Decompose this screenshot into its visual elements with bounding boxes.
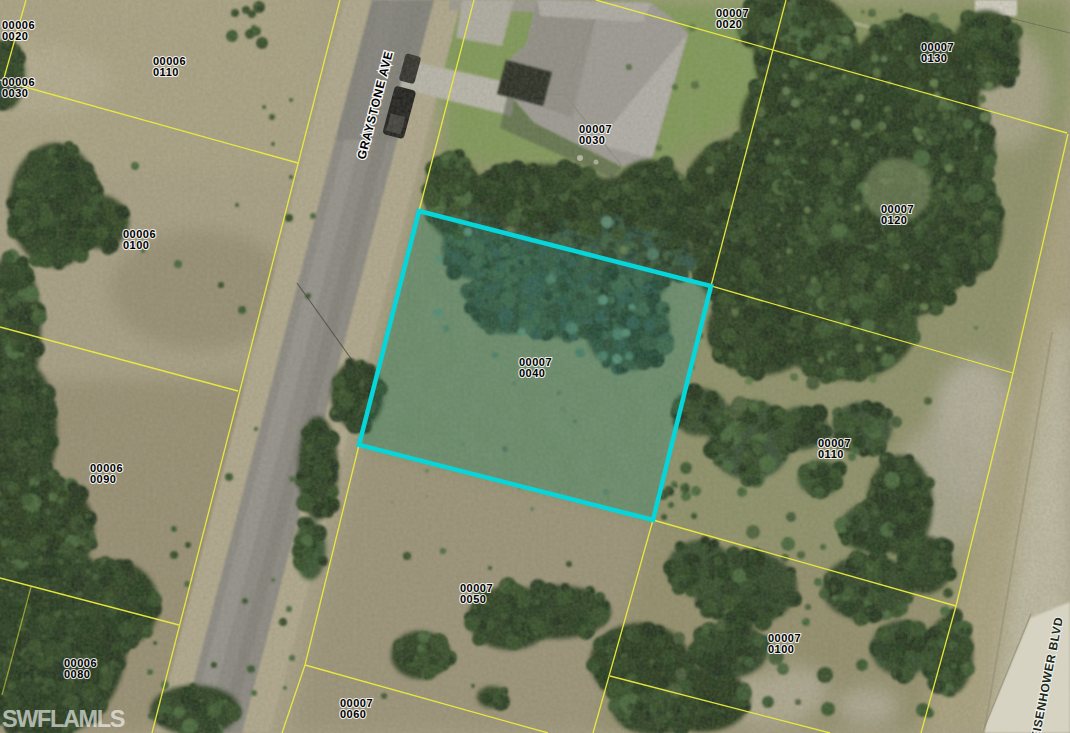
svg-text:0100: 0100 <box>123 239 149 251</box>
svg-text:SWFLAMLS: SWFLAMLS <box>2 706 125 732</box>
svg-text:0110: 0110 <box>153 66 179 78</box>
svg-text:0130: 0130 <box>921 52 947 64</box>
svg-text:0020: 0020 <box>2 30 28 42</box>
svg-text:0030: 0030 <box>579 134 605 146</box>
svg-text:0100: 0100 <box>768 643 794 655</box>
svg-text:0020: 0020 <box>716 18 742 30</box>
svg-text:0030: 0030 <box>2 87 28 99</box>
svg-text:0120: 0120 <box>881 214 907 226</box>
svg-text:0050: 0050 <box>460 593 486 605</box>
svg-text:0110: 0110 <box>818 448 844 460</box>
svg-text:0040: 0040 <box>519 367 545 379</box>
svg-text:0080: 0080 <box>64 668 90 680</box>
svg-text:0090: 0090 <box>90 473 116 485</box>
svg-text:0060: 0060 <box>340 708 366 720</box>
